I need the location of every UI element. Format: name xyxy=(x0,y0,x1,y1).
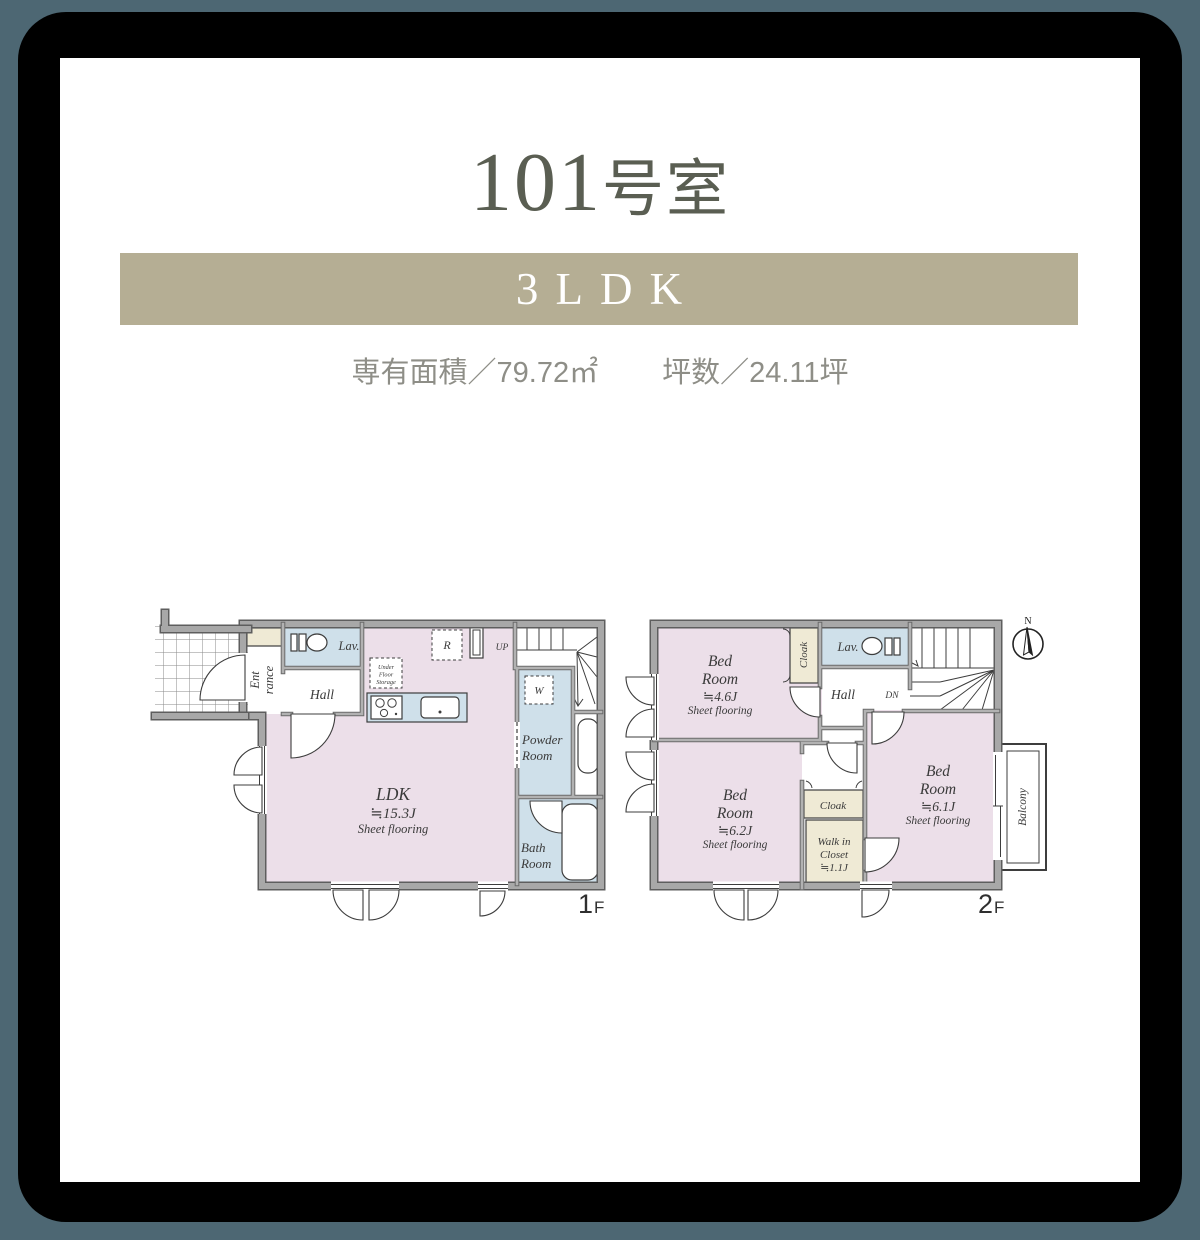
tsubo-label: 坪数／24.11坪 xyxy=(662,349,848,391)
exclusive-area-label: 専有面積／79.72㎡ xyxy=(352,349,599,391)
ufs-label-2: Floor xyxy=(378,672,394,679)
wic-label-2: Closet xyxy=(820,849,849,861)
cabinet xyxy=(470,627,483,658)
window-swing-icon xyxy=(234,747,262,775)
window-swing-icon xyxy=(234,785,262,813)
kitchen-counter xyxy=(367,693,467,722)
bath-label-1: Bath xyxy=(521,840,546,855)
hall2-label: Hall xyxy=(830,687,855,702)
bedroom2-size-label: ≒6.2J xyxy=(718,823,753,838)
page-title: 101号室 xyxy=(0,134,1200,231)
washer-label: W xyxy=(534,685,544,697)
floor2-number: 2 xyxy=(978,889,993,919)
ldk-size-label: ≒15.3J xyxy=(370,806,417,822)
stove-icon xyxy=(371,696,402,719)
bedroom3-size-label: ≒6.1J xyxy=(921,799,956,814)
cloak-top-label: Cloak xyxy=(798,641,810,668)
bathtub-icon xyxy=(562,804,598,880)
stairs-2f xyxy=(910,624,996,710)
window-swing-icon xyxy=(626,752,654,780)
toilet-icon xyxy=(291,634,327,651)
hall-label: Hall xyxy=(309,687,334,702)
floorplan-1f: Ent rance Lav. Hall Under Floor Storage … xyxy=(150,600,620,930)
sink-icon xyxy=(421,697,459,718)
window-swing-icon xyxy=(333,890,363,920)
window-swing-icon xyxy=(748,890,778,920)
floorplan-2f: N Bed Room ≒4.6J Sheet flooring Bed Room… xyxy=(620,600,1070,930)
bedroom1-size-label: ≒4.6J xyxy=(703,689,738,704)
window-swing-icon xyxy=(626,709,654,737)
ufs-label-1: Under xyxy=(378,664,395,671)
window-swing-icon xyxy=(862,890,889,917)
window-swing-icon xyxy=(480,891,505,916)
compass-north-label: N xyxy=(1024,616,1031,627)
area-specs: 専有面積／79.72㎡ 坪数／24.11坪 xyxy=(0,349,1200,391)
refrigerator-label: R xyxy=(442,638,451,652)
bedroom3-flooring-label: Sheet flooring xyxy=(906,815,971,827)
compass-icon: N xyxy=(1013,616,1043,659)
room-suffix: 号室 xyxy=(602,156,730,224)
ldk-label: LDK xyxy=(375,784,411,804)
cloak-middle-label: Cloak xyxy=(820,800,847,812)
passage-door-swing-icon xyxy=(827,743,857,773)
lavatory2-label: Lav. xyxy=(837,640,859,654)
window-swing-icon xyxy=(369,890,399,920)
wic-label-3: ≒1.1J xyxy=(820,862,849,874)
bedroom3-label-1: Bed xyxy=(926,763,950,780)
powder-label-2: Room xyxy=(521,748,552,763)
entrance-label-2: rance xyxy=(262,665,276,694)
bedroom3-label-2: Room xyxy=(919,781,956,798)
layout-type-banner: 3LDK xyxy=(120,253,1078,325)
bedroom2-label-2: Room xyxy=(716,805,753,822)
entrance-label-1: Ent xyxy=(248,671,262,690)
floor1-suffix: F xyxy=(594,898,604,917)
window-swing-icon xyxy=(714,890,744,920)
bedroom2-flooring-label: Sheet flooring xyxy=(703,839,768,851)
floor1-number: 1 xyxy=(578,889,593,919)
vanity-basin-icon xyxy=(578,719,598,773)
bath-label-2: Room xyxy=(520,856,551,871)
bedroom2-label-1: Bed xyxy=(723,787,747,804)
ldk-flooring-label: Sheet flooring xyxy=(358,822,428,836)
wic-label-1: Walk in xyxy=(818,836,851,848)
lavatory-label: Lav. xyxy=(338,639,360,653)
bedroom1-flooring-label: Sheet flooring xyxy=(688,705,753,717)
stairs-down-label: DN xyxy=(884,691,899,701)
window-swing-icon xyxy=(626,677,654,705)
stairs-up-label: UP xyxy=(496,643,509,653)
ufs-label-3: Storage xyxy=(376,679,396,686)
balcony-label: Balcony xyxy=(1017,787,1029,826)
cloak-middle-folding-door xyxy=(806,781,862,788)
bedroom1-label-1: Bed xyxy=(708,653,732,670)
room-number: 101 xyxy=(470,136,602,229)
powder-label-1: Powder xyxy=(521,732,563,747)
bedroom1-label-2: Room xyxy=(701,671,738,688)
layout-type-label: 3LDK xyxy=(499,263,699,315)
floor2-suffix: F xyxy=(994,898,1004,917)
window-swing-icon xyxy=(626,784,654,812)
